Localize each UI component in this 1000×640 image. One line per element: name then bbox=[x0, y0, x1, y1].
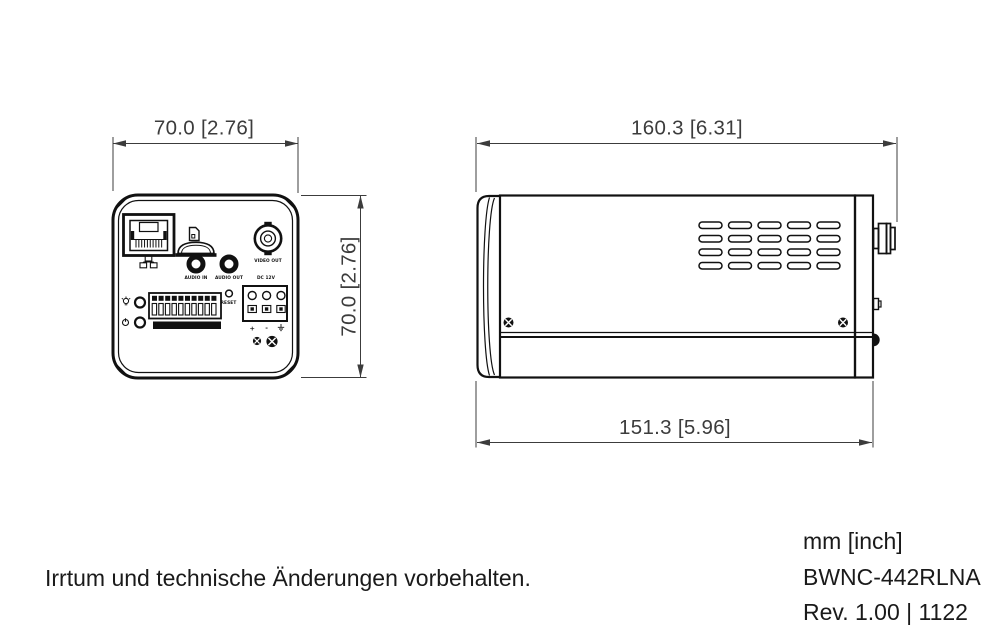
rear-plate bbox=[855, 196, 873, 378]
chassis-screws bbox=[253, 336, 278, 347]
alarm-led-icon bbox=[122, 297, 130, 305]
alarm-led bbox=[135, 298, 145, 308]
network-icon bbox=[140, 256, 157, 268]
revision-text: Rev. 1.00 | 1122 bbox=[803, 595, 981, 631]
vent-slots bbox=[699, 222, 840, 269]
side-body bbox=[500, 196, 855, 378]
audio-out-jack: AUDIO OUT bbox=[215, 257, 243, 281]
power-plus-label: + bbox=[249, 325, 254, 333]
power-minus-label: - bbox=[265, 324, 268, 332]
front-bezel bbox=[478, 196, 501, 377]
reset-button: RESET bbox=[221, 290, 237, 306]
side-length-body-text: 151.3 [5.96] bbox=[619, 416, 731, 439]
terminal-pin-row bbox=[152, 304, 216, 316]
status-leds bbox=[122, 297, 145, 328]
side-length-overall-text: 160.3 [6.31] bbox=[631, 117, 743, 140]
sd-card-icon bbox=[190, 228, 200, 241]
ground-symbol-icon bbox=[278, 324, 284, 331]
ethernet-port bbox=[124, 215, 175, 256]
power-terminal-block: + - bbox=[243, 286, 287, 333]
rear-height-dimension: 70.0 [2.76] bbox=[301, 196, 367, 378]
audio-in-jack: AUDIO IN bbox=[185, 257, 208, 281]
side-screws bbox=[504, 318, 849, 328]
model-number: BWNC-442RLNA bbox=[803, 560, 981, 596]
dimension-drawing: VIDEO OUT AUDIO IN AUDIO OUT DC 12V bbox=[0, 0, 1000, 505]
disclaimer-text: Irrtum und technische Änderungen vorbeha… bbox=[45, 565, 531, 592]
audio-in-label: AUDIO IN bbox=[185, 275, 208, 281]
bnc-connector-side bbox=[874, 224, 896, 254]
mounting-rail bbox=[500, 333, 873, 338]
bnc-video-out-connector: VIDEO OUT bbox=[254, 222, 282, 264]
side-length-overall-dimension: 160.3 [6.31] bbox=[476, 117, 897, 223]
io-terminal-block bbox=[149, 293, 221, 329]
technical-drawing-page: VIDEO OUT AUDIO IN AUDIO OUT DC 12V bbox=[0, 0, 1000, 640]
rear-width-dim-text: 70.0 [2.76] bbox=[154, 117, 254, 140]
rear-view: VIDEO OUT AUDIO IN AUDIO OUT DC 12V bbox=[113, 117, 367, 379]
audio-out-label: AUDIO OUT bbox=[215, 275, 243, 281]
side-protrusions bbox=[874, 299, 882, 347]
power-led bbox=[135, 318, 145, 328]
dc-power-label: DC 12V bbox=[257, 275, 276, 281]
power-led-icon bbox=[123, 318, 129, 325]
title-block: mm [inch] BWNC-442RLNA Rev. 1.00 | 1122 bbox=[803, 524, 981, 631]
rear-width-dimension: 70.0 [2.76] bbox=[113, 117, 298, 194]
terminal-screw-row bbox=[152, 296, 216, 301]
rear-height-dim-text: 70.0 [2.76] bbox=[338, 236, 361, 336]
side-view: 160.3 [6.31] 151.3 [5.96] bbox=[476, 117, 897, 448]
side-length-body-dimension: 151.3 [5.96] bbox=[476, 381, 873, 448]
video-out-label: VIDEO OUT bbox=[254, 258, 282, 264]
reset-label: RESET bbox=[221, 300, 237, 306]
units-note: mm [inch] bbox=[803, 524, 981, 560]
